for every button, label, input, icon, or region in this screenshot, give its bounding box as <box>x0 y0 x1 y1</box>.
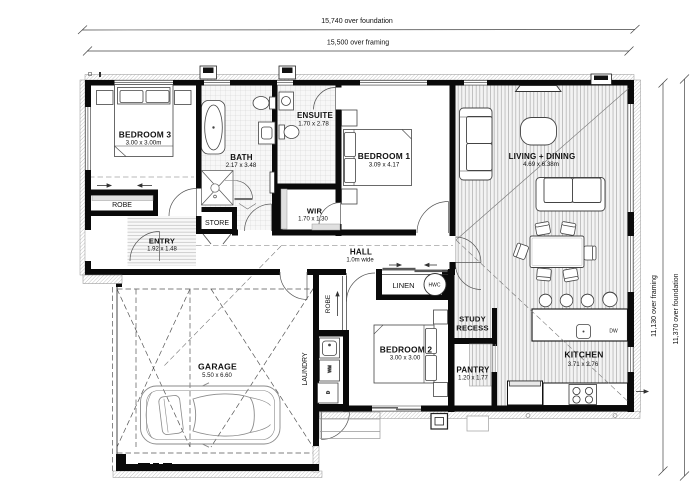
svg-text:ROBE: ROBE <box>325 294 332 313</box>
svg-text:5.50 x 6.60: 5.50 x 6.60 <box>202 373 232 379</box>
svg-text:DW: DW <box>609 329 618 335</box>
svg-text:2.17 x 3.48: 2.17 x 3.48 <box>226 162 257 169</box>
svg-text:RECESS: RECESS <box>456 324 488 333</box>
svg-text:STORE: STORE <box>205 220 229 227</box>
svg-text:1.20 x 1.77: 1.20 x 1.77 <box>458 376 488 382</box>
svg-text:ROBE: ROBE <box>112 202 132 209</box>
svg-text:LIVING + DINING: LIVING + DINING <box>509 152 576 161</box>
svg-text:LINEN: LINEN <box>392 281 414 290</box>
svg-text:3.00 x 3.00: 3.00 x 3.00 <box>390 355 421 362</box>
svg-text:STUDY: STUDY <box>459 315 486 324</box>
svg-text:1.0m wide: 1.0m wide <box>346 258 374 264</box>
svg-text:WIR: WIR <box>307 207 323 216</box>
svg-text:D: D <box>325 391 330 394</box>
svg-text:3.00 x 3.00m: 3.00 x 3.00m <box>126 140 162 147</box>
svg-text:HALL: HALL <box>350 248 372 257</box>
svg-text:BATH: BATH <box>230 153 252 162</box>
svg-text:HWC: HWC <box>429 283 441 289</box>
svg-text:1.70 x 1.30: 1.70 x 1.30 <box>298 217 328 223</box>
svg-text:11,130 over framing: 11,130 over framing <box>651 275 658 337</box>
svg-text:BEDROOM 3: BEDROOM 3 <box>119 130 172 140</box>
svg-text:ENTRY: ENTRY <box>149 237 175 246</box>
svg-text:1.70 x 2.78: 1.70 x 2.78 <box>298 121 329 128</box>
svg-text:WM: WM <box>327 365 332 373</box>
svg-text:PANTRY: PANTRY <box>456 366 490 375</box>
svg-text:KITCHEN: KITCHEN <box>564 350 603 360</box>
svg-text:LAUNDRY: LAUNDRY <box>302 352 309 386</box>
svg-text:BEDROOM 1: BEDROOM 1 <box>358 151 411 161</box>
svg-text:4.69 x 6.38m: 4.69 x 6.38m <box>523 161 559 168</box>
svg-text:3.71 x 2.76: 3.71 x 2.76 <box>568 361 599 368</box>
svg-text:BEDROOM 2: BEDROOM 2 <box>380 345 433 355</box>
svg-text:15,500 over framing: 15,500 over framing <box>327 40 389 47</box>
svg-text:3.09 x 4.17: 3.09 x 4.17 <box>369 162 400 169</box>
svg-text:ENSUITE: ENSUITE <box>297 111 334 120</box>
svg-text:11,370 over foundation: 11,370 over foundation <box>673 273 680 344</box>
svg-text:GARAGE: GARAGE <box>198 362 237 372</box>
svg-text:15,740 over foundation: 15,740 over foundation <box>321 18 393 25</box>
svg-text:1.92 x 1.48: 1.92 x 1.48 <box>147 247 177 253</box>
